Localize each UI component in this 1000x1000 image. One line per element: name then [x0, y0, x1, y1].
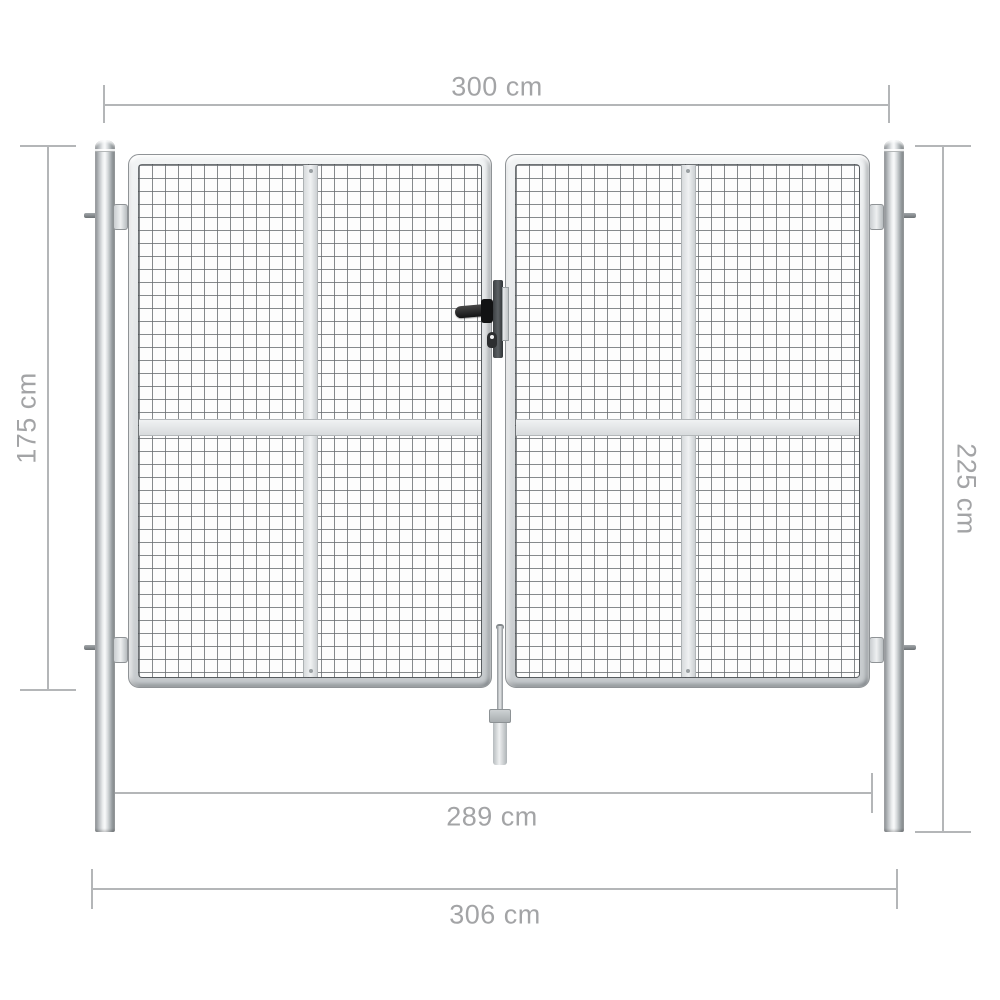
dimension-line [92, 888, 898, 890]
outer-width-label: 306 cm [449, 900, 541, 931]
gate-leaf-left [128, 154, 492, 688]
right-bottom-hinge [869, 637, 884, 663]
dimension-tick [896, 869, 898, 909]
post-cap-seam [95, 149, 115, 152]
left-post [95, 140, 115, 832]
dimension-line [104, 104, 890, 106]
dimension-tick [20, 145, 76, 147]
handle-hub [481, 299, 493, 323]
top-width-label: 300 cm [451, 72, 543, 103]
gate-leaf-right [505, 154, 870, 688]
left-bottom-hinge [113, 637, 128, 663]
keyhole [487, 332, 497, 348]
inner-width-label: 289 cm [446, 802, 538, 833]
dimension-line [47, 146, 49, 690]
drop-bolt-rod [497, 626, 503, 714]
post-cap-seam [884, 149, 904, 152]
drop-bolt-sleeve [493, 723, 507, 765]
dimension-tick [91, 869, 93, 909]
gate-dimension-diagram: 300 cm 175 cm 225 cm 289 cm 306 cm [0, 0, 1000, 1000]
gate-height-label: 175 cm [12, 372, 43, 464]
right-top-hinge [869, 204, 884, 230]
dimension-tick [888, 85, 890, 123]
mesh-panel [138, 164, 482, 678]
dimension-tick [103, 85, 105, 123]
latch-keeper [502, 287, 509, 341]
left-top-hinge [113, 204, 128, 230]
dimension-tick [915, 831, 971, 833]
horizontal-brace [139, 419, 481, 436]
right-post [884, 140, 904, 832]
drop-bolt-collar [489, 709, 511, 723]
post-height-label: 225 cm [951, 443, 982, 535]
dimension-line [942, 146, 944, 832]
dimension-line [112, 792, 873, 794]
dimension-tick [20, 689, 76, 691]
dimension-tick [871, 773, 873, 813]
mesh-panel [515, 164, 860, 678]
dimension-tick [915, 145, 971, 147]
horizontal-brace [516, 419, 859, 436]
